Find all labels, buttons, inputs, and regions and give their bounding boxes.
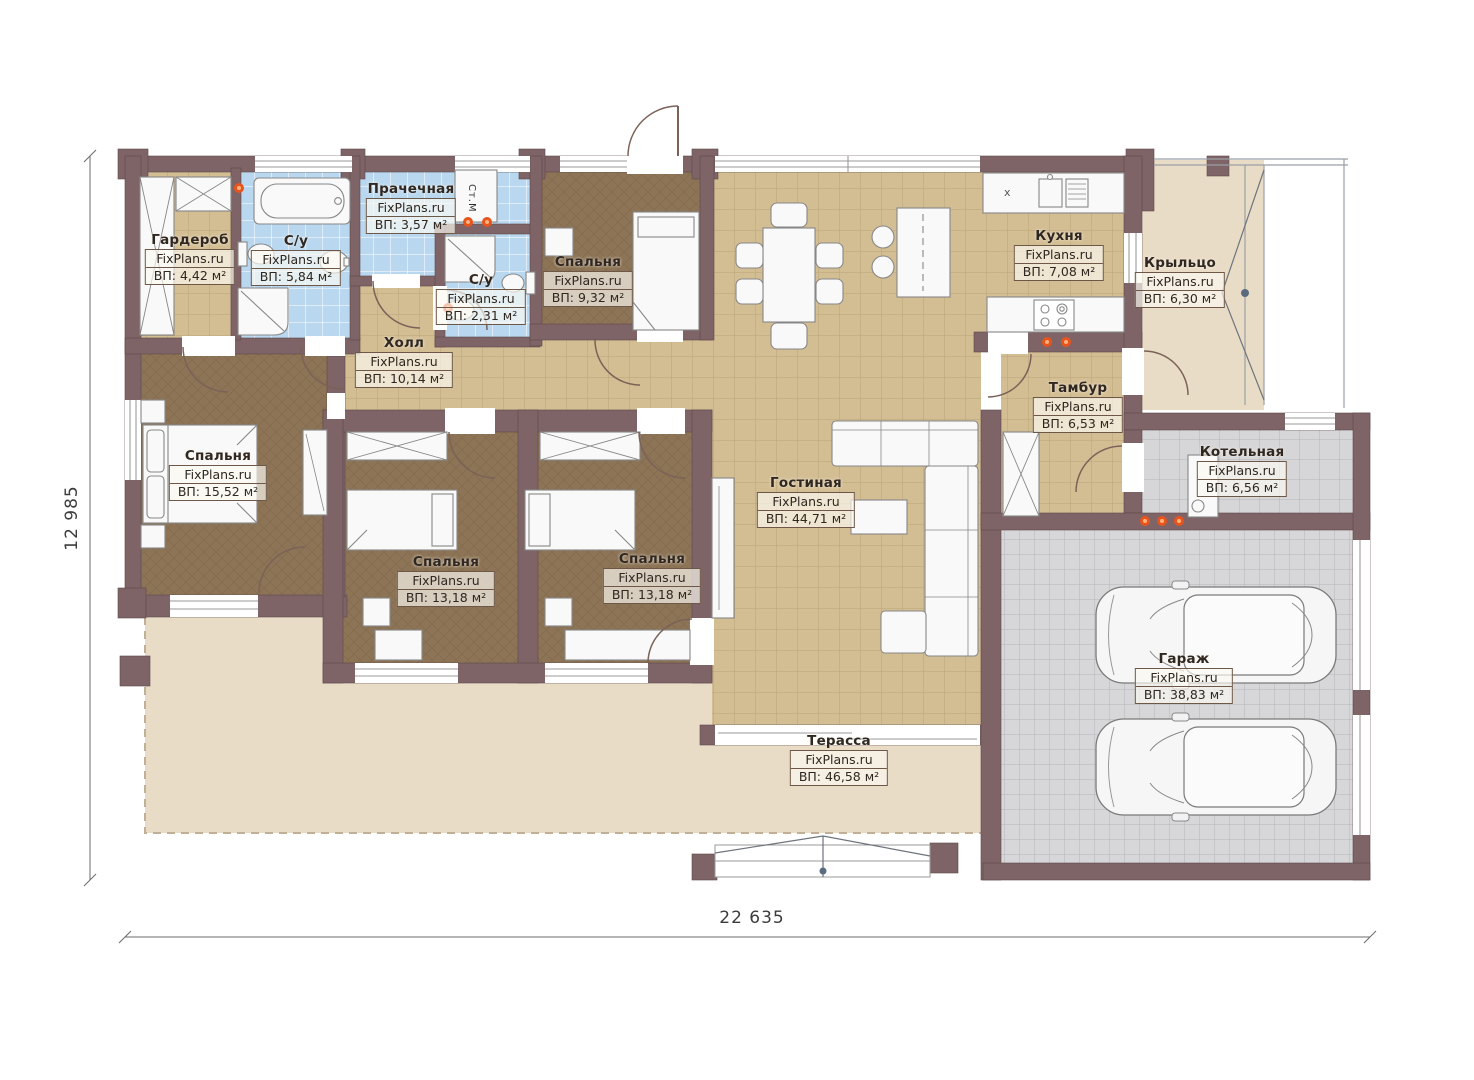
room-area: ВП: 5,84 м² — [252, 269, 340, 286]
room-name: Прачечная — [366, 181, 456, 197]
floor-plan: Гардероб FixPlans.ru ВП: 4,42 м² С/у Fix… — [0, 0, 1474, 1080]
wardrobe-master — [303, 430, 327, 515]
room-info-box: FixPlans.ru ВП: 6,56 м² — [1197, 461, 1287, 497]
dimension-height: 12 985 — [62, 485, 82, 550]
room-name: Гостиная — [757, 475, 855, 491]
room-area: ВП: 38,83 м² — [1136, 687, 1232, 704]
room-label-vestibule: Тамбур FixPlans.ru ВП: 6,53 м² — [1033, 380, 1123, 433]
room-area: ВП: 13,18 м² — [604, 587, 700, 604]
room-info-box: FixPlans.ru ВП: 6,30 м² — [1135, 272, 1225, 308]
room-name: Крыльцо — [1135, 255, 1225, 271]
room-area: ВП: 6,53 м² — [1034, 416, 1122, 433]
watermark: FixPlans.ru — [146, 250, 234, 268]
room-label-bedroom-3: Спальня FixPlans.ru ВП: 13,18 м² — [603, 551, 701, 604]
room-info-box: FixPlans.ru ВП: 6,53 м² — [1033, 397, 1123, 433]
room-area: ВП: 6,30 м² — [1136, 291, 1224, 308]
room-name: Гардероб — [145, 232, 235, 248]
room-area: ВП: 6,56 м² — [1198, 480, 1286, 497]
room-name: Спальня — [603, 551, 701, 567]
room-label-bedroom-small: Спальня FixPlans.ru ВП: 9,32 м² — [543, 254, 633, 307]
room-label-garage: Гараж FixPlans.ru ВП: 38,83 м² — [1135, 651, 1233, 704]
room-name: Терасса — [790, 733, 888, 749]
room-info-box: FixPlans.ru ВП: 15,52 м² — [169, 465, 267, 501]
watermark: FixPlans.ru — [1015, 246, 1103, 264]
room-name: С/у — [436, 272, 526, 288]
room-area: ВП: 13,18 м² — [398, 590, 494, 607]
room-area: ВП: 44,71 м² — [758, 511, 854, 528]
shower — [238, 288, 288, 335]
room-label-kitchen: Кухня FixPlans.ru ВП: 7,08 м² — [1014, 228, 1104, 281]
room-label-bedroom-2: Спальня FixPlans.ru ВП: 13,18 м² — [397, 554, 495, 607]
watermark: FixPlans.ru — [1034, 398, 1122, 416]
room-label-terrace: Терасса FixPlans.ru ВП: 46,58 м² — [790, 733, 888, 786]
room-area: ВП: 10,14 м² — [356, 371, 452, 388]
watermark: FixPlans.ru — [398, 572, 494, 590]
room-label-bathroom-2: С/у FixPlans.ru ВП: 2,31 м² — [436, 272, 526, 325]
room-name: Спальня — [543, 254, 633, 270]
room-info-box: FixPlans.ru ВП: 13,18 м² — [603, 568, 701, 604]
watermark: FixPlans.ru — [1198, 462, 1286, 480]
room-area: ВП: 46,58 м² — [791, 769, 887, 786]
room-name: Холл — [355, 335, 453, 351]
watermark: FixPlans.ru — [252, 251, 340, 269]
room-name: Тамбур — [1033, 380, 1123, 396]
washing-machine-label: Ст.М — [466, 184, 477, 213]
watermark: FixPlans.ru — [356, 353, 452, 371]
room-area: ВП: 3,57 м² — [367, 217, 455, 234]
kitchen-cabinet-mark: x — [1004, 186, 1011, 199]
room-label-living-room: Гостиная FixPlans.ru ВП: 44,71 м² — [757, 475, 855, 528]
nightstand — [545, 228, 573, 256]
room-label-boiler-room: Котельная FixPlans.ru ВП: 6,56 м² — [1197, 444, 1287, 497]
car-2 — [1096, 713, 1336, 821]
room-info-box: FixPlans.ru ВП: 3,57 м² — [366, 198, 456, 234]
room-info-box: FixPlans.ru ВП: 9,32 м² — [543, 271, 633, 307]
tv-stand — [712, 478, 734, 618]
watermark: FixPlans.ru — [1136, 273, 1224, 291]
watermark: FixPlans.ru — [170, 466, 266, 484]
room-name: Кухня — [1014, 228, 1104, 244]
bathtub — [254, 178, 350, 224]
room-area: ВП: 2,31 м² — [437, 308, 525, 325]
room-area: ВП: 4,42 м² — [146, 268, 234, 285]
room-label-hall: Холл FixPlans.ru ВП: 10,14 м² — [355, 335, 453, 388]
room-info-box: FixPlans.ru ВП: 10,14 м² — [355, 352, 453, 388]
dimension-width: 22 635 — [719, 908, 784, 928]
room-info-box: FixPlans.ru ВП: 38,83 м² — [1135, 668, 1233, 704]
terrace-steps — [715, 836, 930, 877]
room-name: Спальня — [397, 554, 495, 570]
room-area: ВП: 15,52 м² — [170, 484, 266, 501]
watermark: FixPlans.ru — [604, 569, 700, 587]
watermark: FixPlans.ru — [758, 493, 854, 511]
room-info-box: FixPlans.ru ВП: 46,58 м² — [790, 750, 888, 786]
closet-bedroom2 — [347, 432, 447, 460]
watermark: FixPlans.ru — [367, 199, 455, 217]
room-label-porch: Крыльцо FixPlans.ru ВП: 6,30 м² — [1135, 255, 1225, 308]
closet-vestibule — [1003, 432, 1039, 516]
bed-small — [633, 212, 699, 330]
room-name: Спальня — [169, 448, 267, 464]
room-name: Котельная — [1197, 444, 1287, 460]
room-label-wardrobe: Гардероб FixPlans.ru ВП: 4,42 м² — [145, 232, 235, 285]
room-label-laundry: Прачечная FixPlans.ru ВП: 3,57 м² — [366, 181, 456, 234]
room-area: ВП: 7,08 м² — [1015, 264, 1103, 281]
watermark: FixPlans.ru — [1136, 669, 1232, 687]
coffee-table — [851, 500, 907, 534]
watermark: FixPlans.ru — [437, 290, 525, 308]
room-info-box: FixPlans.ru ВП: 5,84 м² — [251, 250, 341, 286]
room-info-box: FixPlans.ru ВП: 44,71 м² — [757, 492, 855, 528]
closet-bedroom3 — [540, 432, 640, 460]
room-info-box: FixPlans.ru ВП: 2,31 м² — [436, 289, 526, 325]
room-info-box: FixPlans.ru ВП: 7,08 м² — [1014, 245, 1104, 281]
room-info-box: FixPlans.ru ВП: 13,18 м² — [397, 571, 495, 607]
room-label-bathroom-1: С/у FixPlans.ru ВП: 5,84 м² — [251, 233, 341, 286]
room-name: Гараж — [1135, 651, 1233, 667]
watermark: FixPlans.ru — [791, 751, 887, 769]
room-label-bedroom-master: Спальня FixPlans.ru ВП: 15,52 м² — [169, 448, 267, 501]
watermark: FixPlans.ru — [544, 272, 632, 290]
room-name: С/у — [251, 233, 341, 249]
room-info-box: FixPlans.ru ВП: 4,42 м² — [145, 249, 235, 285]
room-area: ВП: 9,32 м² — [544, 290, 632, 307]
